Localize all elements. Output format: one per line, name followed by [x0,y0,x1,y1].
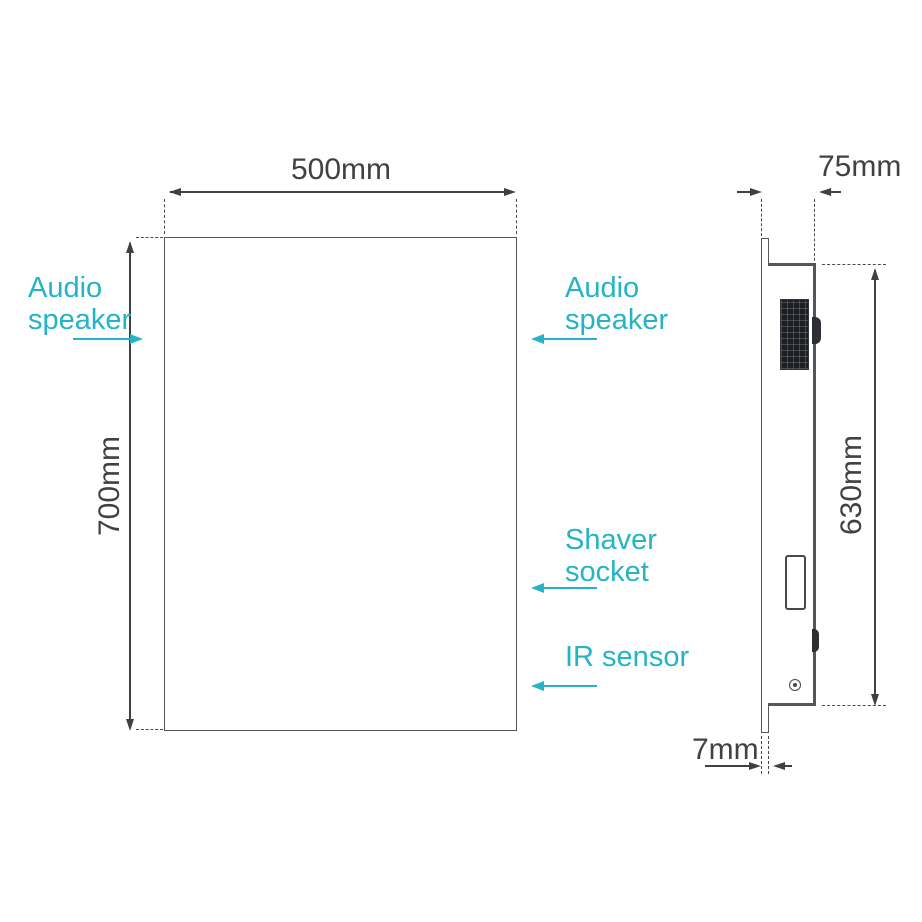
arrowhead-up-icon [871,265,879,280]
arrowhead-right-icon [749,762,764,770]
side-height-dimension-line [874,270,876,700]
side-view-screw [789,679,801,691]
height-dimension-label: 700mm [93,416,127,556]
arrowhead-left-icon [166,188,181,196]
depth-dimension-label: 75mm [818,150,901,184]
label-ir-sensor: IR sensor [565,641,689,673]
glass-thickness-line [782,765,792,767]
extension-line [516,199,517,234]
pointer-shaver-socket [540,587,597,589]
arrowhead-down-icon [871,694,879,709]
extension-line [814,199,815,261]
side-height-dimension-label: 630mm [835,415,869,555]
side-view-speaker-bump [812,317,821,344]
extension-line [136,729,163,730]
label-audio-speaker-left: Audio speaker [28,272,131,337]
side-view-speaker [780,299,809,370]
pointer-ir-sensor [540,685,597,687]
side-view-ir-sensor [812,629,819,652]
front-view-outline [164,237,517,731]
dimension-diagram: 500mm 700mm Audio speaker Audio speaker … [0,0,922,922]
side-view-shaver-socket [785,555,806,610]
arrowhead-up-icon [126,238,134,253]
extension-line [761,199,762,236]
arrowhead-down-icon [126,719,134,734]
extension-line [136,237,163,238]
label-shaver-socket: Shaver socket [565,524,657,589]
pointer-audio-speaker-right [540,338,597,340]
pointer-audio-speaker-left [73,338,131,340]
arrowhead-right-icon [504,188,519,196]
pointer-arrowhead-icon [130,334,146,344]
extension-line [164,199,165,234]
extension-line [768,736,769,774]
width-dimension-line [170,191,512,193]
glass-thickness-line [705,765,749,767]
arrowhead-right-icon [750,188,765,196]
width-dimension-label: 500mm [241,153,441,187]
label-audio-speaker-right: Audio speaker [565,272,668,337]
depth-dimension-line [827,191,841,193]
